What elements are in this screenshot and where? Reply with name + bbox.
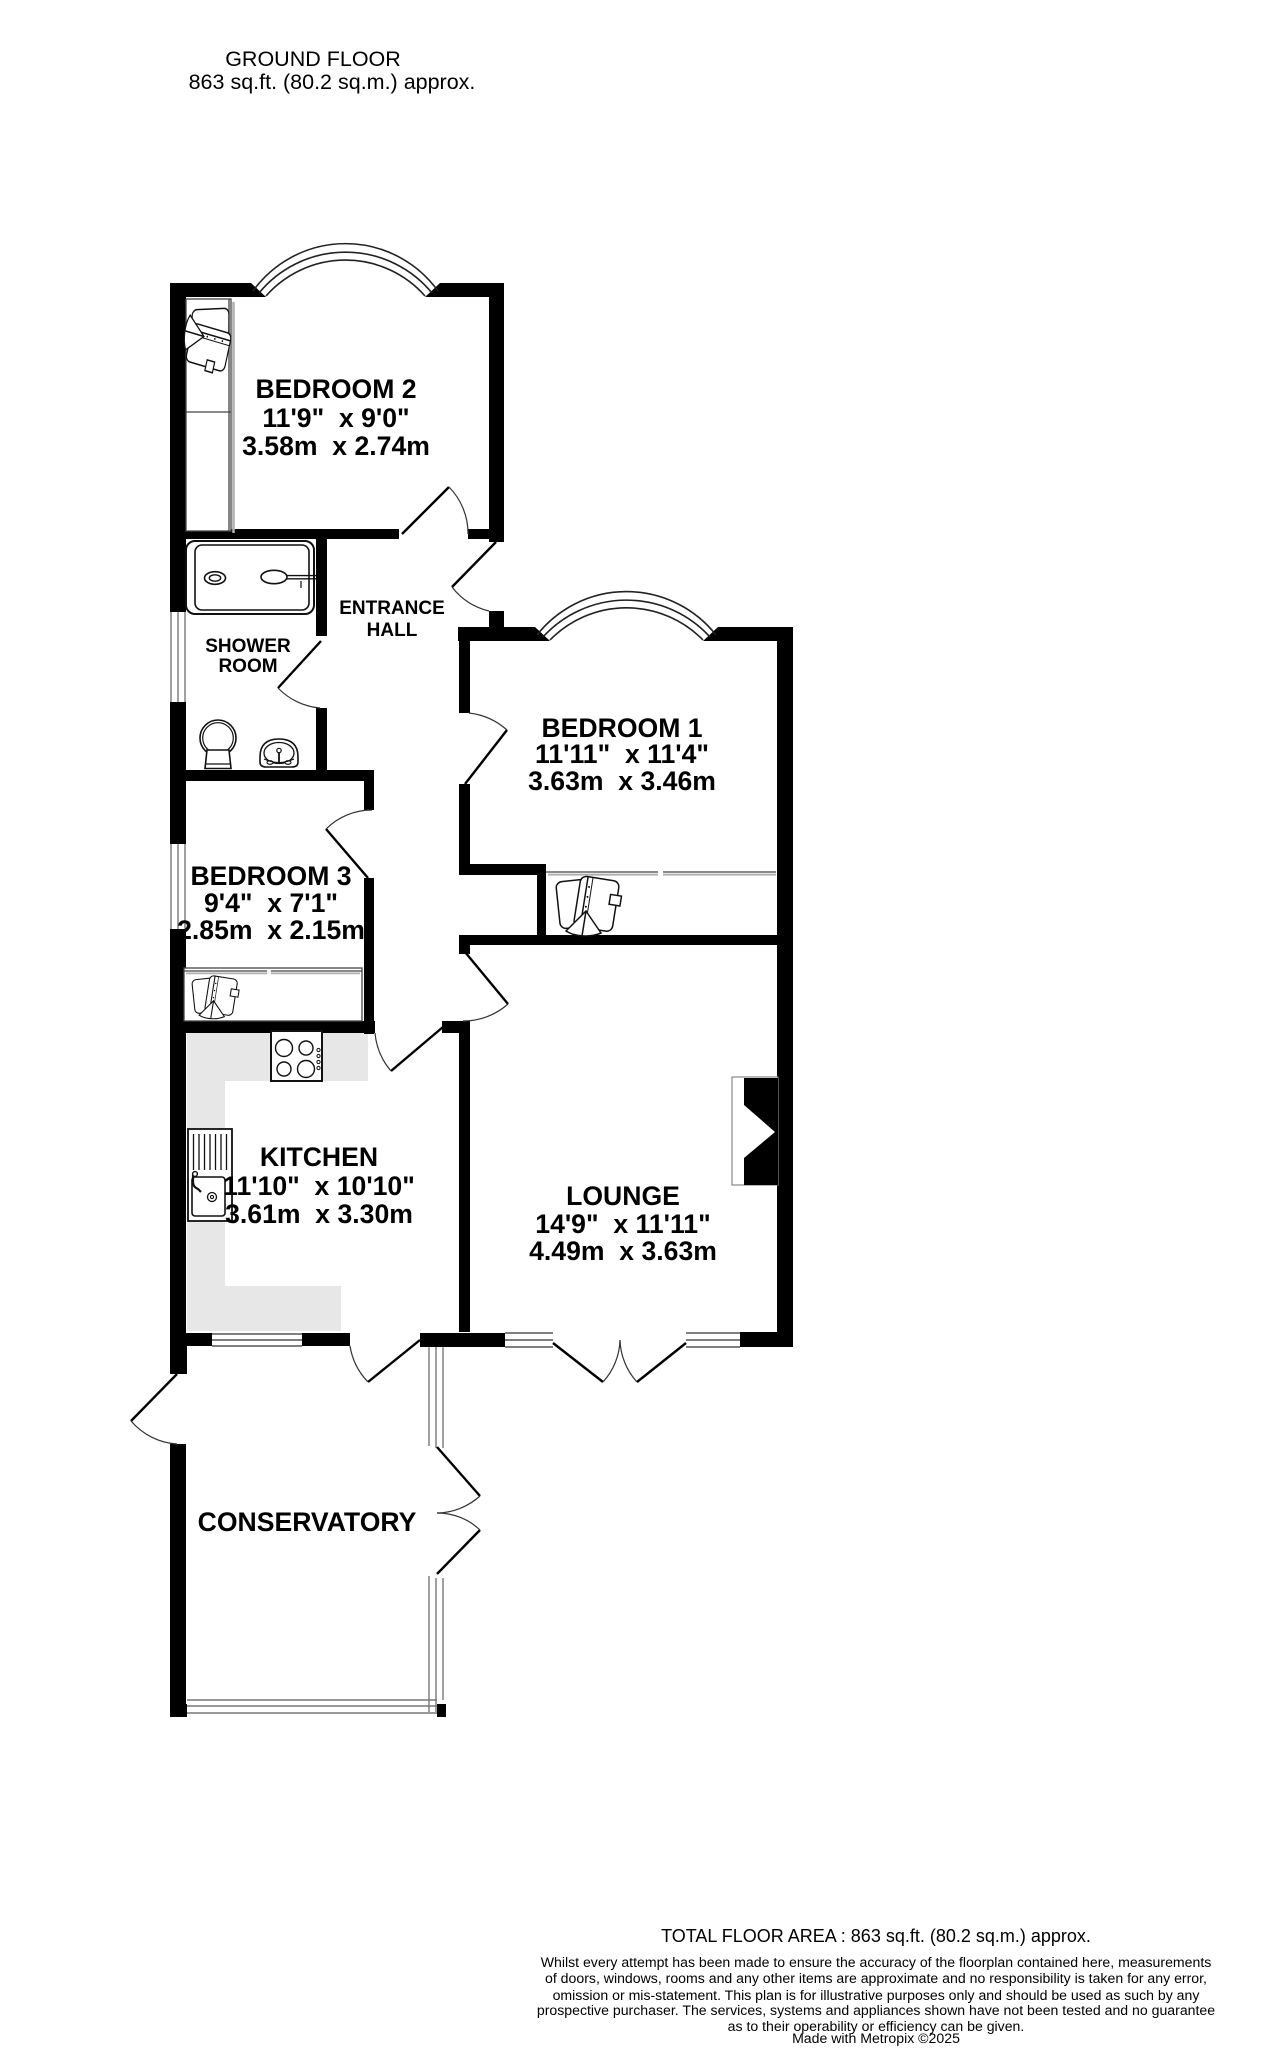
svg-text:BEDROOM 3: BEDROOM 3 [190, 861, 351, 891]
svg-text:omission or mis-statement. Thi: omission or mis-statement. This plan is … [553, 1987, 1201, 2003]
svg-text:SHOWER: SHOWER [205, 636, 291, 657]
svg-text:4.49m x 3.63m: 4.49m x 3.63m [529, 1236, 717, 1266]
svg-text:2.85m x 2.15m: 2.85m x 2.15m [177, 915, 365, 945]
svg-text:9'4" x 7'1": 9'4" x 7'1" [204, 888, 338, 918]
svg-text:14'9" x 11'11": 14'9" x 11'11" [535, 1209, 710, 1239]
svg-text:ENTRANCE: ENTRANCE [339, 598, 445, 619]
svg-text:11'9" x 9'0": 11'9" x 9'0" [262, 403, 409, 433]
svg-text:3.61m x 3.30m: 3.61m x 3.30m [225, 1199, 413, 1229]
svg-text:LOUNGE: LOUNGE [566, 1181, 680, 1211]
svg-text:11'10" x 10'10": 11'10" x 10'10" [223, 1171, 415, 1201]
svg-text:863 sq.ft. (80.2 sq.m.) approx: 863 sq.ft. (80.2 sq.m.) approx. [189, 70, 476, 94]
svg-text:CONSERVATORY: CONSERVATORY [198, 1507, 417, 1537]
svg-text:prospective purchaser. The ser: prospective purchaser. The services, sys… [537, 2002, 1215, 2018]
svg-text:Whilst every attempt has been: Whilst every attempt has been made to en… [541, 1954, 1212, 1970]
svg-text:HALL: HALL [367, 620, 418, 641]
svg-text:GROUND FLOOR: GROUND FLOOR [225, 47, 401, 71]
svg-text:11'11" x 11'4": 11'11" x 11'4" [535, 739, 709, 769]
svg-text:of doors, windows, rooms and a: of doors, windows, rooms and any other i… [545, 1970, 1207, 1986]
svg-text:3.63m x 3.46m: 3.63m x 3.46m [528, 766, 716, 796]
svg-text:BEDROOM 2: BEDROOM 2 [255, 374, 416, 404]
svg-text:ROOM: ROOM [218, 656, 277, 677]
svg-text:3.58m x 2.74m: 3.58m x 2.74m [242, 431, 430, 461]
svg-text:Made with Metropix ©2025: Made with Metropix ©2025 [792, 2030, 960, 2046]
svg-text:KITCHEN: KITCHEN [260, 1142, 378, 1172]
svg-text:TOTAL FLOOR AREA : 863 sq.ft.: TOTAL FLOOR AREA : 863 sq.ft. (80.2 sq.m… [661, 1926, 1091, 1946]
